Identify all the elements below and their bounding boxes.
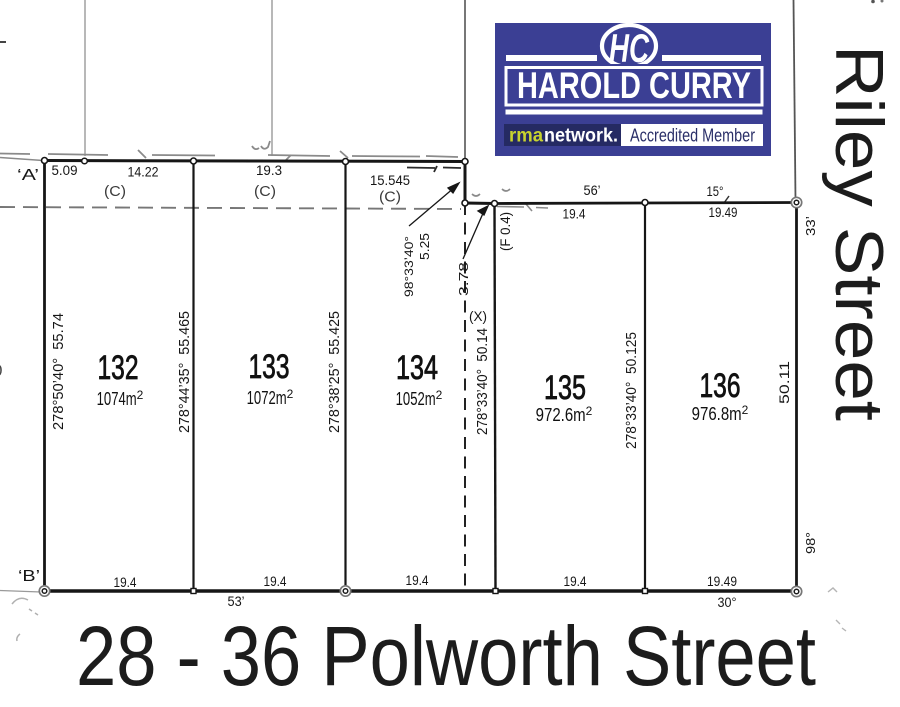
- svg-text:Accredited Member: Accredited Member: [630, 126, 755, 146]
- svg-text:19.4: 19.4: [264, 573, 287, 589]
- svg-text:98°: 98°: [804, 532, 818, 554]
- svg-text:976.8m2: 976.8m2: [692, 403, 749, 424]
- svg-text:19.4: 19.4: [563, 207, 586, 222]
- svg-text:278°44’35° 55.465: 278°44’35° 55.465: [176, 311, 193, 433]
- svg-text:50.11: 50.11: [776, 361, 792, 404]
- svg-text:(C): (C): [254, 183, 276, 200]
- svg-text:(X): (X): [469, 309, 487, 324]
- svg-text:136: 136: [700, 367, 741, 405]
- svg-text:28 - 36 Polworth Street: 28 - 36 Polworth Street: [76, 609, 816, 703]
- svg-text:278°33’40° 50.125: 278°33’40° 50.125: [623, 332, 640, 449]
- svg-text:19.4: 19.4: [564, 573, 587, 589]
- svg-text:135: 135: [544, 369, 586, 407]
- svg-text:134: 134: [396, 349, 438, 387]
- svg-text:56’: 56’: [584, 183, 601, 198]
- svg-text:132: 132: [98, 349, 139, 387]
- svg-text:30°: 30°: [718, 595, 737, 610]
- svg-text:19.3: 19.3: [256, 163, 282, 178]
- svg-text:15°: 15°: [707, 184, 724, 199]
- svg-text:5.25: 5.25: [417, 233, 432, 260]
- svg-text:HAROLD CURRY: HAROLD CURRY: [517, 65, 751, 106]
- svg-text:Riley Street: Riley Street: [821, 45, 897, 421]
- svg-text:(C): (C): [104, 183, 126, 200]
- svg-text:15.545: 15.545: [370, 173, 410, 188]
- svg-text:‘A’: ‘A’: [17, 167, 39, 184]
- svg-text:53’: 53’: [228, 594, 245, 609]
- svg-text:(F 0.4): (F 0.4): [498, 212, 513, 251]
- svg-text:278°38’25° 55.425: 278°38’25° 55.425: [326, 311, 343, 433]
- svg-text:19.4: 19.4: [114, 574, 137, 590]
- svg-text:‘B’: ‘B’: [18, 568, 40, 585]
- svg-text:5.09: 5.09: [52, 163, 78, 178]
- svg-text:0: 0: [0, 361, 2, 380]
- svg-text:3.78: 3.78: [456, 262, 471, 296]
- svg-text:278°50’40° 55.74: 278°50’40° 55.74: [50, 313, 67, 430]
- svg-text:14.22: 14.22: [128, 165, 159, 180]
- svg-text:1052m2: 1052m2: [396, 388, 443, 409]
- svg-text:278°33’40° 50.14: 278°33’40° 50.14: [474, 328, 491, 435]
- svg-text:(C): (C): [379, 189, 401, 206]
- svg-text:972.6m2: 972.6m2: [536, 404, 593, 425]
- svg-text:19.49: 19.49: [707, 573, 737, 589]
- svg-text:1072m2: 1072m2: [247, 387, 294, 408]
- svg-text:1074m2: 1074m2: [97, 388, 144, 409]
- svg-text:rmanetwork.: rmanetwork.: [509, 126, 618, 147]
- svg-text:98°33’40°: 98°33’40°: [404, 236, 416, 297]
- svg-text:19.49: 19.49: [709, 205, 738, 220]
- svg-text:133: 133: [249, 348, 290, 386]
- svg-text:33’: 33’: [804, 216, 818, 236]
- svg-text:19.4: 19.4: [406, 572, 429, 588]
